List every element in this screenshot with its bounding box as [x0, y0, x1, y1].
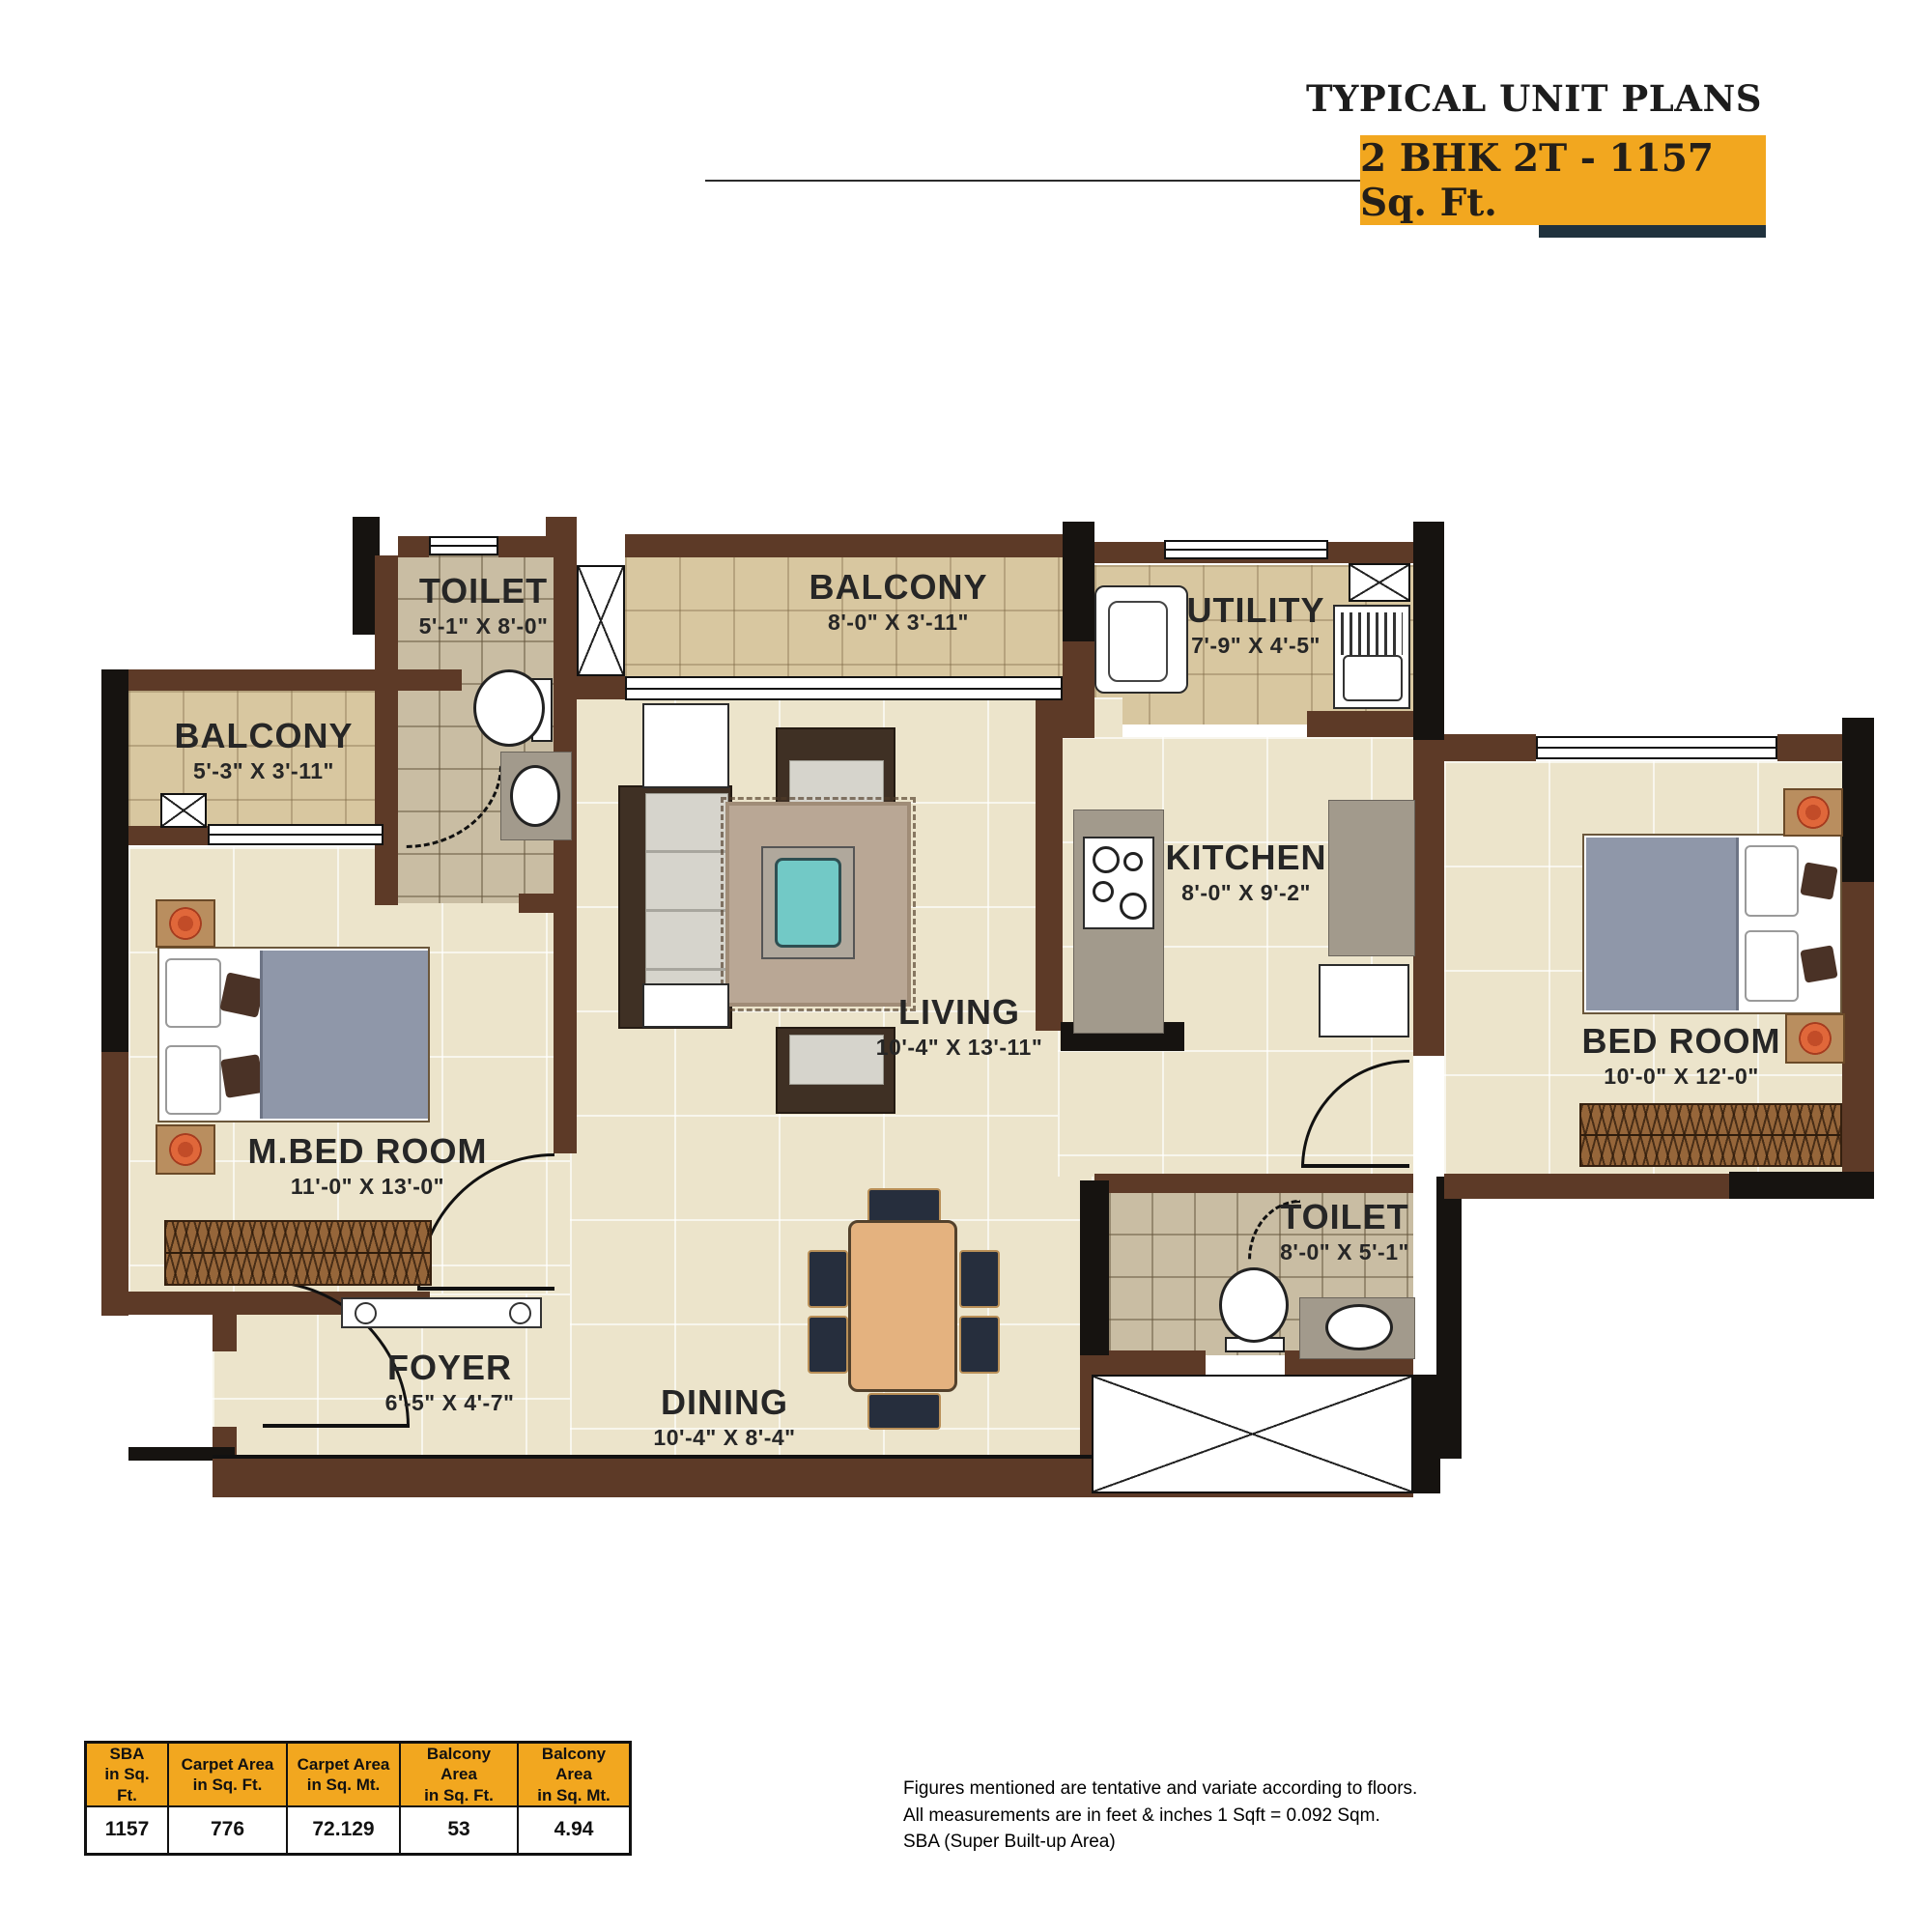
room-dims: 6'-5" X 4'-7": [336, 1391, 563, 1415]
wall-segment: [1777, 734, 1845, 761]
wall-segment: [1036, 697, 1063, 1031]
burner: [1093, 846, 1120, 873]
dining-chair: [959, 1250, 1000, 1308]
wall-segment: [1729, 1172, 1874, 1199]
header-line2: in Sq. Ft.: [193, 1776, 263, 1794]
room-name: FOYER: [336, 1349, 563, 1387]
col-header: Balcony Areain Sq. Ft.: [400, 1743, 518, 1806]
wall-segment: [1080, 1180, 1109, 1359]
wall-segment: [1444, 1174, 1734, 1199]
sink-basin: [1343, 655, 1403, 701]
nightstand: [156, 899, 215, 948]
wall-segment: [1413, 1375, 1440, 1493]
room-dims: 8'-0" X 5'-1": [1229, 1240, 1461, 1264]
pillow: [165, 1045, 221, 1115]
room-name: M.BED ROOM: [220, 1132, 515, 1171]
banner-underbar: [1539, 225, 1766, 238]
window: [1164, 540, 1328, 559]
room-dims: 10'-0" X 12'-0": [1534, 1065, 1829, 1089]
table-cell: 4.94: [518, 1806, 631, 1855]
room-label-balcony-top: BALCONY 8'-0" X 3'-11": [749, 568, 1048, 635]
wall-segment: [625, 534, 1065, 557]
page: { "header": { "title": "TYPICAL UNIT PLA…: [0, 0, 1932, 1932]
cushion: [219, 972, 265, 1017]
col-header: Carpet Areain Sq. Mt.: [287, 1743, 400, 1806]
dining-chair: [808, 1250, 848, 1308]
header-line1: SBA: [110, 1745, 145, 1763]
room-dims: 8'-0" X 3'-11": [749, 611, 1048, 635]
wall-segment: [1413, 740, 1444, 1056]
header-line2: in Sq. Ft.: [104, 1765, 149, 1804]
wall-segment: [1307, 711, 1413, 737]
note-line: SBA (Super Built-up Area): [903, 1829, 1483, 1856]
room-name: BALCONY: [749, 568, 1048, 607]
table-cell: 72.129: [287, 1806, 400, 1855]
side-table: [642, 703, 729, 788]
room-name: KITCHEN: [1121, 838, 1372, 877]
note-line: All measurements are in feet & inches 1 …: [903, 1803, 1483, 1830]
decor-bowl: [169, 1133, 202, 1166]
pillow: [1745, 845, 1799, 917]
wall-segment: [128, 826, 208, 845]
room-label-bedroom: BED ROOM 10'-0" X 12'-0": [1534, 1022, 1829, 1089]
room-name: TOILET: [384, 572, 582, 611]
table-cell: 1157: [86, 1806, 169, 1855]
room-name: LIVING: [838, 993, 1080, 1032]
wall-segment: [101, 669, 128, 828]
room-dims: 5'-3" X 3'-11": [143, 759, 384, 783]
disclaimer-notes: Figures mentioned are tentative and vari…: [903, 1776, 1483, 1856]
wall-segment: [128, 669, 462, 691]
fridge: [1319, 964, 1409, 1037]
wardrobe: [164, 1220, 432, 1286]
dining-table: [848, 1220, 957, 1392]
room-name: UTILITY: [1111, 591, 1401, 630]
coffee-table: [761, 846, 855, 959]
pillow: [165, 958, 221, 1028]
wash-basin: [1325, 1304, 1393, 1350]
room-dims: 10'-4" X 8'-4": [609, 1426, 840, 1450]
room-name: BALCONY: [143, 717, 384, 755]
room-label-dining: DINING 10'-4" X 8'-4": [609, 1383, 840, 1450]
note-line: Figures mentioned are tentative and vari…: [903, 1776, 1483, 1803]
window: [625, 676, 1063, 700]
header-line2: in Sq. Mt.: [537, 1786, 611, 1804]
burner: [1093, 881, 1114, 902]
decor-bowl: [1797, 796, 1830, 829]
toilet-wc: [1219, 1267, 1289, 1343]
wall-segment: [1444, 734, 1536, 761]
foyer-console: [341, 1297, 542, 1328]
room-dims: 10'-4" X 13'-11": [838, 1036, 1080, 1060]
room-label-utility: UTILITY 7'-9" X 4'-5": [1111, 591, 1401, 658]
room-label-foyer: FOYER 6'-5" X 4'-7": [336, 1349, 563, 1415]
header-line2: in Sq. Ft.: [424, 1786, 494, 1804]
area-table-value-row: 1157 776 72.129 53 4.94: [86, 1806, 631, 1855]
wall-segment: [1109, 1350, 1206, 1376]
room-dims: 8'-0" X 9'-2": [1121, 881, 1372, 905]
duct-shaft: [160, 793, 207, 828]
table-cell: 776: [168, 1806, 287, 1855]
nightstand: [156, 1124, 215, 1175]
wall-segment: [101, 828, 128, 1052]
room-label-master-bedroom: M.BED ROOM 11'-0" X 13'-0": [220, 1132, 515, 1199]
wall-segment: [1413, 522, 1444, 740]
room-name: TOILET: [1229, 1198, 1461, 1236]
wall-segment: [1094, 1174, 1413, 1193]
wall-segment: [1842, 718, 1874, 884]
duct-shaft: [577, 565, 625, 676]
cushion: [1800, 945, 1837, 982]
wall-segment: [101, 1052, 128, 1316]
window: [1536, 736, 1777, 759]
unit-type-banner: 2 BHK 2T - 1157 Sq. Ft.: [1360, 135, 1766, 225]
area-table: SBAin Sq. Ft. Carpet Areain Sq. Ft. Carp…: [84, 1741, 632, 1856]
header-line1: Balcony Area: [427, 1745, 491, 1783]
room-dims: 7'-9" X 4'-5": [1111, 634, 1401, 658]
page-title: TYPICAL UNIT PLANS: [1256, 77, 1762, 120]
col-header: SBAin Sq. Ft.: [86, 1743, 169, 1806]
bed: [157, 947, 430, 1122]
header-rule: [705, 180, 1362, 182]
dining-chair: [959, 1316, 1000, 1374]
room-dims: 11'-0" X 13'-0": [220, 1175, 515, 1199]
dining-chair: [808, 1316, 848, 1374]
wall-segment: [213, 1293, 237, 1351]
dining-chair: [867, 1393, 941, 1430]
side-table: [642, 983, 729, 1028]
cushion: [1800, 862, 1837, 899]
window: [208, 824, 384, 845]
duct-shaft: [1092, 1375, 1413, 1493]
wall-segment: [1063, 522, 1094, 641]
window: [429, 536, 498, 555]
col-header: Carpet Areain Sq. Ft.: [168, 1743, 287, 1806]
pillow: [1745, 930, 1799, 1002]
room-label-toilet-right: TOILET 8'-0" X 5'-1": [1229, 1198, 1461, 1264]
room-label-living: LIVING 10'-4" X 13'-11": [838, 993, 1080, 1060]
room-label-balcony-left: BALCONY 5'-3" X 3'-11": [143, 717, 384, 783]
wall-segment: [1063, 641, 1094, 738]
nightstand: [1783, 788, 1843, 837]
header-line1: Carpet Area: [298, 1755, 390, 1774]
area-table-header-row: SBAin Sq. Ft. Carpet Areain Sq. Ft. Carp…: [86, 1743, 631, 1806]
col-header: Balcony Areain Sq. Mt.: [518, 1743, 631, 1806]
header-line1: Balcony Area: [542, 1745, 606, 1783]
wall-segment: [570, 676, 625, 699]
duvet: [1586, 838, 1739, 1010]
room-name: DINING: [609, 1383, 840, 1422]
header-line2: in Sq. Mt.: [307, 1776, 381, 1794]
table-cell: 53: [400, 1806, 518, 1855]
room-label-toilet-top: TOILET 5'-1" X 8'-0": [384, 572, 582, 639]
cushion: [220, 1054, 265, 1098]
duvet: [260, 951, 428, 1119]
wall-segment: [1842, 882, 1874, 1174]
room-name: BED ROOM: [1534, 1022, 1829, 1061]
room-dims: 5'-1" X 8'-0": [384, 614, 582, 639]
bed: [1582, 834, 1842, 1014]
console-knob: [509, 1302, 531, 1324]
console-knob: [355, 1302, 377, 1324]
main-door-leaf: [263, 1424, 410, 1428]
wall-segment: [519, 894, 573, 913]
decor-bowl: [169, 907, 202, 940]
wardrobe: [1579, 1103, 1842, 1167]
wash-basin: [510, 765, 560, 827]
wall-segment: [398, 536, 429, 557]
toilet-wc: [473, 669, 545, 747]
mbed-door-leaf: [417, 1287, 554, 1291]
room-label-kitchen: KITCHEN 8'-0" X 9'-2": [1121, 838, 1372, 905]
coffee-table-top: [775, 858, 841, 948]
bedroom-door-leaf: [1301, 1164, 1409, 1168]
header-line1: Carpet Area: [182, 1755, 274, 1774]
